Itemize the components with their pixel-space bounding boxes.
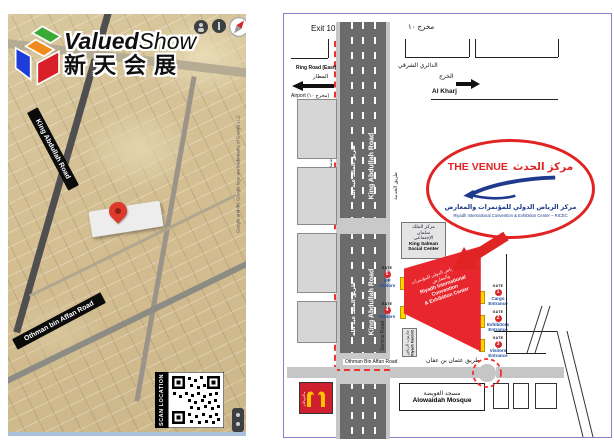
brand-name-bold: Valued bbox=[64, 28, 139, 54]
brand-name-cn: 新天会展 bbox=[64, 53, 196, 78]
highway-merge-zone bbox=[336, 218, 390, 234]
king-salman-label-ar: مركز الملك سلمان الإجتماعي bbox=[402, 225, 445, 242]
city-block bbox=[535, 383, 557, 409]
city-block-line bbox=[494, 331, 557, 332]
schematic-map: Exit 10 مخرج ١٠ (Exit 10) Ring Road (Eas… bbox=[283, 13, 612, 438]
marriott-label-en: Riyadh Marriott bbox=[410, 330, 414, 356]
othman-road-banner-label: Othman bin Affan Road bbox=[23, 300, 95, 343]
gate-4-visitors: GATE 4 Visitors bbox=[376, 302, 398, 320]
king-salman-label-en: King Salman Social Center bbox=[402, 242, 445, 253]
venue-title-en: THE VENUE bbox=[448, 161, 508, 173]
city-block-line bbox=[475, 57, 558, 58]
exit-10-label-ar: مخرج ١٠ bbox=[408, 23, 434, 31]
service-road-label-ar: طريق الخدمة bbox=[393, 172, 399, 200]
city-block bbox=[493, 383, 509, 409]
ricec-logo-swoosh-icon bbox=[456, 175, 566, 201]
city-block-line bbox=[469, 39, 470, 57]
map-bottom-edge bbox=[8, 432, 246, 436]
gate-3-visitors-entrance: GATE 3 Visitors Entrance bbox=[485, 336, 511, 359]
venue-sub-ar: مركز الرياض الدولي للمؤتمرات والمعارض bbox=[445, 203, 577, 211]
city-block bbox=[297, 233, 337, 293]
scan-location-label: SCAN LOCATION bbox=[159, 374, 165, 426]
othman-road-label-en: Othman Bin Affan Road bbox=[343, 359, 399, 365]
qr-code bbox=[168, 372, 224, 428]
mcdonalds: ماكدونالدز bbox=[299, 382, 333, 414]
city-block-line bbox=[328, 39, 329, 58]
compass-icon[interactable] bbox=[229, 17, 246, 37]
map-zoom-control[interactable] bbox=[232, 408, 244, 432]
venue-callout-bubble: THE VENUE مركز الحدث مركز الرياض الدولي … bbox=[426, 139, 595, 239]
gate-name: Visitors bbox=[379, 315, 395, 320]
satellite-road-othman bbox=[8, 249, 246, 386]
ring-road-east-label: Ring Road (East) bbox=[296, 65, 336, 71]
satellite-map: King Abdullah Road Othman bin Affan Road… bbox=[8, 14, 246, 436]
othman-road-west bbox=[287, 367, 337, 378]
riyadh-marriott-box: ماريوت الرياض Riyadh Marriott bbox=[402, 328, 417, 357]
service-road-label-en: Service Road bbox=[380, 321, 386, 351]
gate-word: GATE bbox=[382, 302, 393, 306]
city-block-line bbox=[475, 39, 476, 57]
gate-number: 3 bbox=[495, 341, 502, 348]
gate-2-exhibitors-entrance: GATE 2 Exhibitors Entrance bbox=[485, 310, 511, 333]
mcdonalds-label-ar: ماكدونالدز bbox=[302, 392, 306, 407]
city-block-line bbox=[405, 57, 469, 58]
city-block-line bbox=[291, 58, 328, 59]
airport-label-ar: المطار bbox=[313, 74, 328, 80]
street-view-icon[interactable] bbox=[194, 20, 208, 34]
venue-sub-en: Riyadh International Convention & Exhibi… bbox=[453, 213, 567, 218]
othman-road-label-ar: طريق عثمان بن عفان bbox=[426, 357, 480, 364]
mosque-label-ar: مسجد العويضة bbox=[424, 390, 461, 397]
google-attribution: Google and the Google logo are trademark… bbox=[236, 115, 241, 233]
gate-number: 5 bbox=[384, 271, 391, 278]
city-block bbox=[513, 383, 529, 409]
gate-word: GATE bbox=[493, 336, 504, 340]
al-kharj-label-en: Al Kharj bbox=[432, 88, 457, 95]
city-block-line bbox=[405, 39, 406, 57]
king-abdullah-label-en: King Abdullah Road bbox=[369, 133, 376, 200]
city-block-line bbox=[558, 39, 559, 57]
eastern-ring-road-label-ar: الدائري الشرقي bbox=[398, 62, 438, 69]
scan-location-strip: SCAN LOCATION bbox=[155, 372, 168, 428]
traffic-layer-icon[interactable] bbox=[212, 19, 226, 33]
gate-1-cargo-entrance: GATE 1 Cargo Entrance bbox=[485, 284, 511, 307]
city-block bbox=[297, 99, 337, 159]
airport-arrow-icon bbox=[292, 81, 334, 91]
gate-name: VIP Visitors bbox=[376, 279, 398, 289]
gate-number: 4 bbox=[384, 307, 391, 314]
roundabout bbox=[478, 364, 496, 382]
brand-name-light: Show bbox=[139, 28, 197, 54]
mosque-label-en: Alowaidah Mosque bbox=[413, 397, 472, 404]
othman-road-east bbox=[390, 367, 480, 378]
king-abdullah-label-en: King Abdullah Road bbox=[369, 269, 376, 336]
gate-word: GATE bbox=[493, 310, 504, 314]
city-block-line bbox=[506, 353, 546, 354]
al-kharj-arrow-icon bbox=[456, 79, 480, 89]
city-block-line bbox=[506, 254, 507, 353]
gate-number: 2 bbox=[495, 315, 502, 322]
king-abdullah-label-ar: طريق الملك عبد الله bbox=[351, 145, 357, 199]
gate-word: GATE bbox=[493, 284, 504, 288]
gate-5-vip-visitors: GATE 5 VIP Visitors bbox=[376, 266, 398, 289]
valuedshow-logo-icon bbox=[14, 24, 64, 92]
brand-name: ValuedShow bbox=[64, 30, 196, 53]
venue-direction-flyer: King Abdullah Road Othman bin Affan Road… bbox=[0, 0, 614, 443]
city-block bbox=[297, 301, 337, 343]
gate-number: 1 bbox=[495, 289, 502, 296]
gate-word: GATE bbox=[382, 266, 393, 270]
king-salman-social-center: مركز الملك سلمان الإجتماعي King Salman S… bbox=[401, 222, 446, 259]
gate-name: Cargo Entrance bbox=[485, 297, 511, 307]
mcdonalds-arches-icon bbox=[305, 388, 327, 408]
city-block bbox=[297, 167, 337, 225]
exit-10-label: Exit 10 bbox=[311, 24, 335, 33]
roundabout-exit-road bbox=[496, 367, 564, 378]
road-edge-line bbox=[431, 99, 558, 100]
alowaidah-mosque: مسجد العويضة Alowaidah Mosque bbox=[399, 383, 485, 411]
king-abdullah-label-ar: طريق الملك عبد الله bbox=[351, 282, 357, 336]
al-kharj-label-ar: الخرج bbox=[439, 73, 454, 80]
venue-title-ar: مركز الحدث bbox=[513, 161, 573, 173]
